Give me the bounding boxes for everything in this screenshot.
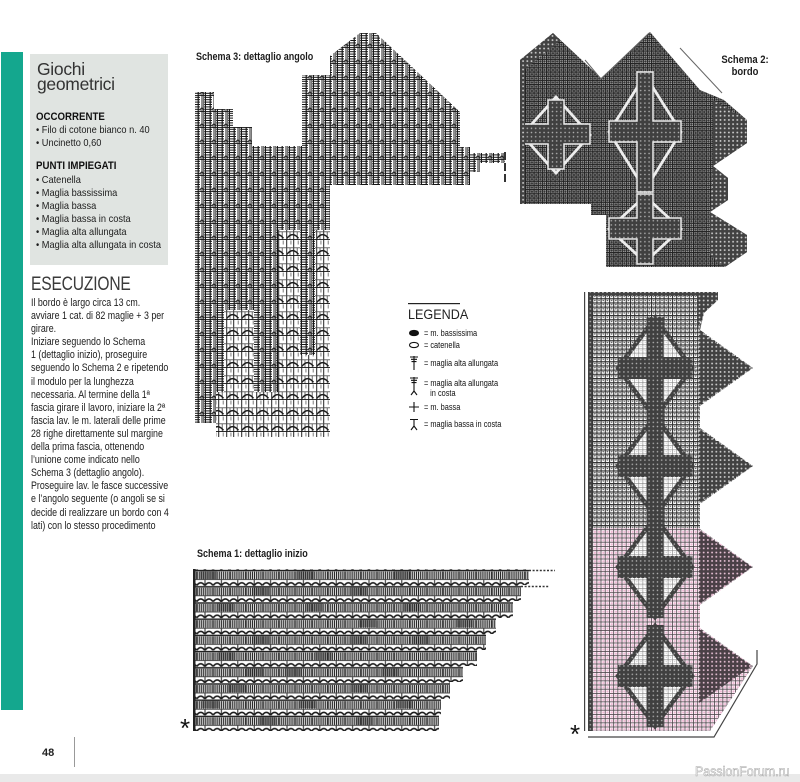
- svg-text:*: *: [570, 719, 580, 749]
- svg-text:*: *: [180, 713, 190, 743]
